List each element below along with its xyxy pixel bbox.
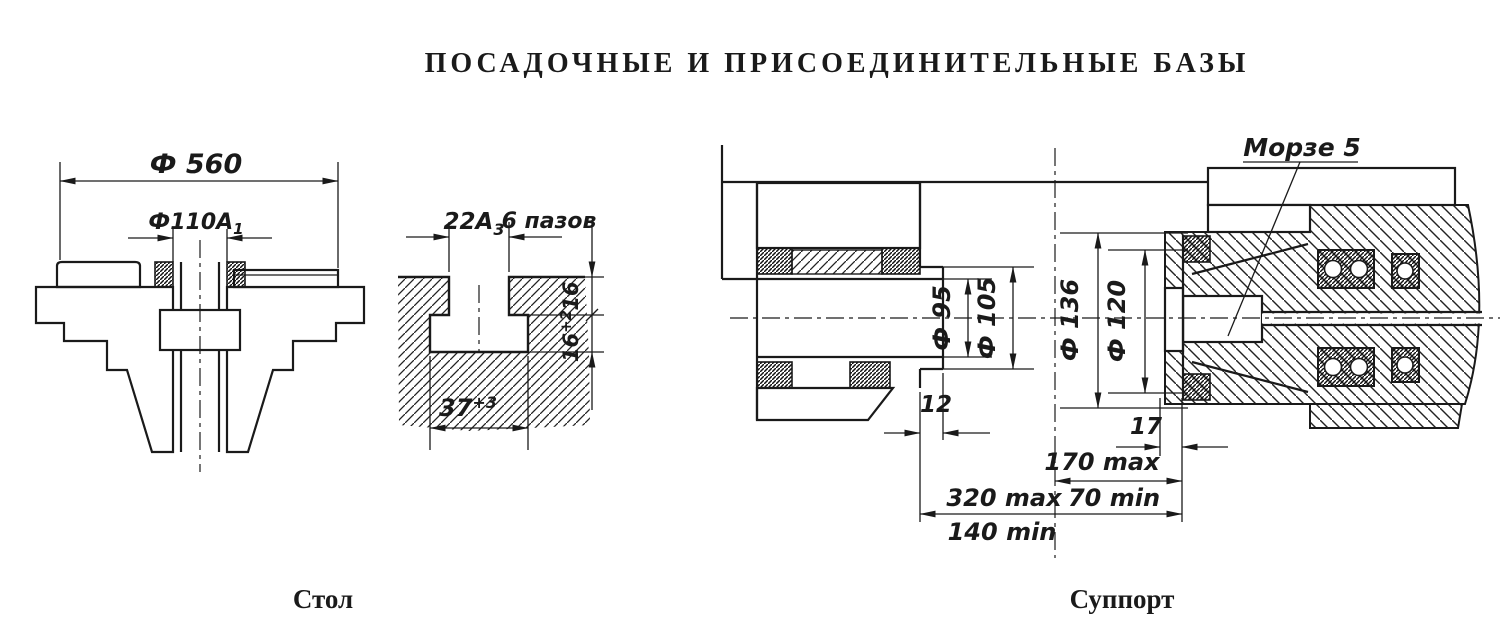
spindle-section xyxy=(1165,168,1482,428)
morse-taper-socket xyxy=(1183,296,1262,342)
morse-label: Морзе 5 xyxy=(1243,133,1361,162)
table-body-left-section xyxy=(36,287,173,452)
dim-label-560: Ф 560 xyxy=(150,149,243,180)
drawing-sheet: ПОСАДОЧНЫЕ И ПРИСОЕДИНИТЕЛЬНЫЕ БАЗЫ Ф 56… xyxy=(0,0,1500,640)
quill-seal-upper-left xyxy=(757,248,792,274)
dim-label-110a1: Ф110А1 xyxy=(148,210,243,238)
table-drawing: Ф 560 Ф110А1 Стол xyxy=(36,149,364,614)
dim-label-16-upper: 16 xyxy=(559,281,583,310)
table-top-rim xyxy=(57,262,140,287)
dim-label-12: 12 xyxy=(920,392,952,418)
quill-seal-lower-left xyxy=(757,362,792,388)
dim-label-170max: 170 max xyxy=(1044,448,1161,476)
dim-label-140min: 140 min xyxy=(948,518,1057,546)
dim-slot-width-22a3: 22А3 6 пазов xyxy=(406,209,596,272)
dim-label-320max: 320 max xyxy=(946,484,1063,512)
dim-diameter-560: Ф 560 xyxy=(60,149,338,268)
dim-travel-170-70: 170 max 70 min xyxy=(1044,448,1182,512)
table-cover-plate xyxy=(234,270,338,287)
tslot-drawing: 22А3 6 пазов 16 16+2 37+3 xyxy=(398,209,604,450)
sleeve-seal-upper xyxy=(1183,236,1210,262)
dim-label-17: 17 xyxy=(1130,414,1162,440)
spindle-housing-band xyxy=(1208,168,1455,205)
support-drawing: Морзе 5 Ф 95 Ф 105 Ф 136 xyxy=(722,133,1500,614)
spindle-nose-collar xyxy=(1165,288,1183,351)
table-seal-right xyxy=(227,262,245,287)
support-caption: Суппорт xyxy=(1070,584,1175,614)
table-seal-left xyxy=(155,262,173,287)
table-caption: Стол xyxy=(293,584,353,614)
table-body-right-section xyxy=(227,287,364,452)
drawing-canvas: ПОСАДОЧНЫЕ И ПРИСОЕДИНИТЕЛЬНЫЕ БАЗЫ Ф 56… xyxy=(0,0,1500,640)
dim-label-95: Ф 95 xyxy=(928,285,956,351)
quill-section xyxy=(757,183,943,420)
dim-label-105: Ф 105 xyxy=(973,277,1001,359)
slots-count-label: 6 пазов xyxy=(502,209,597,234)
page-title: ПОСАДОЧНЫЕ И ПРИСОЕДИНИТЕЛЬНЫЕ БАЗЫ xyxy=(425,48,1250,79)
dim-label-70min: 70 min xyxy=(1068,484,1160,512)
dim-label-22a3: 22А3 xyxy=(444,209,505,239)
dim-label-136: Ф 136 xyxy=(1056,279,1084,361)
quill-seal-lower-right xyxy=(850,362,890,388)
sleeve-seal-lower xyxy=(1183,374,1210,400)
quill-seal-upper-right xyxy=(882,248,920,274)
dim-label-120: Ф 120 xyxy=(1103,280,1131,362)
